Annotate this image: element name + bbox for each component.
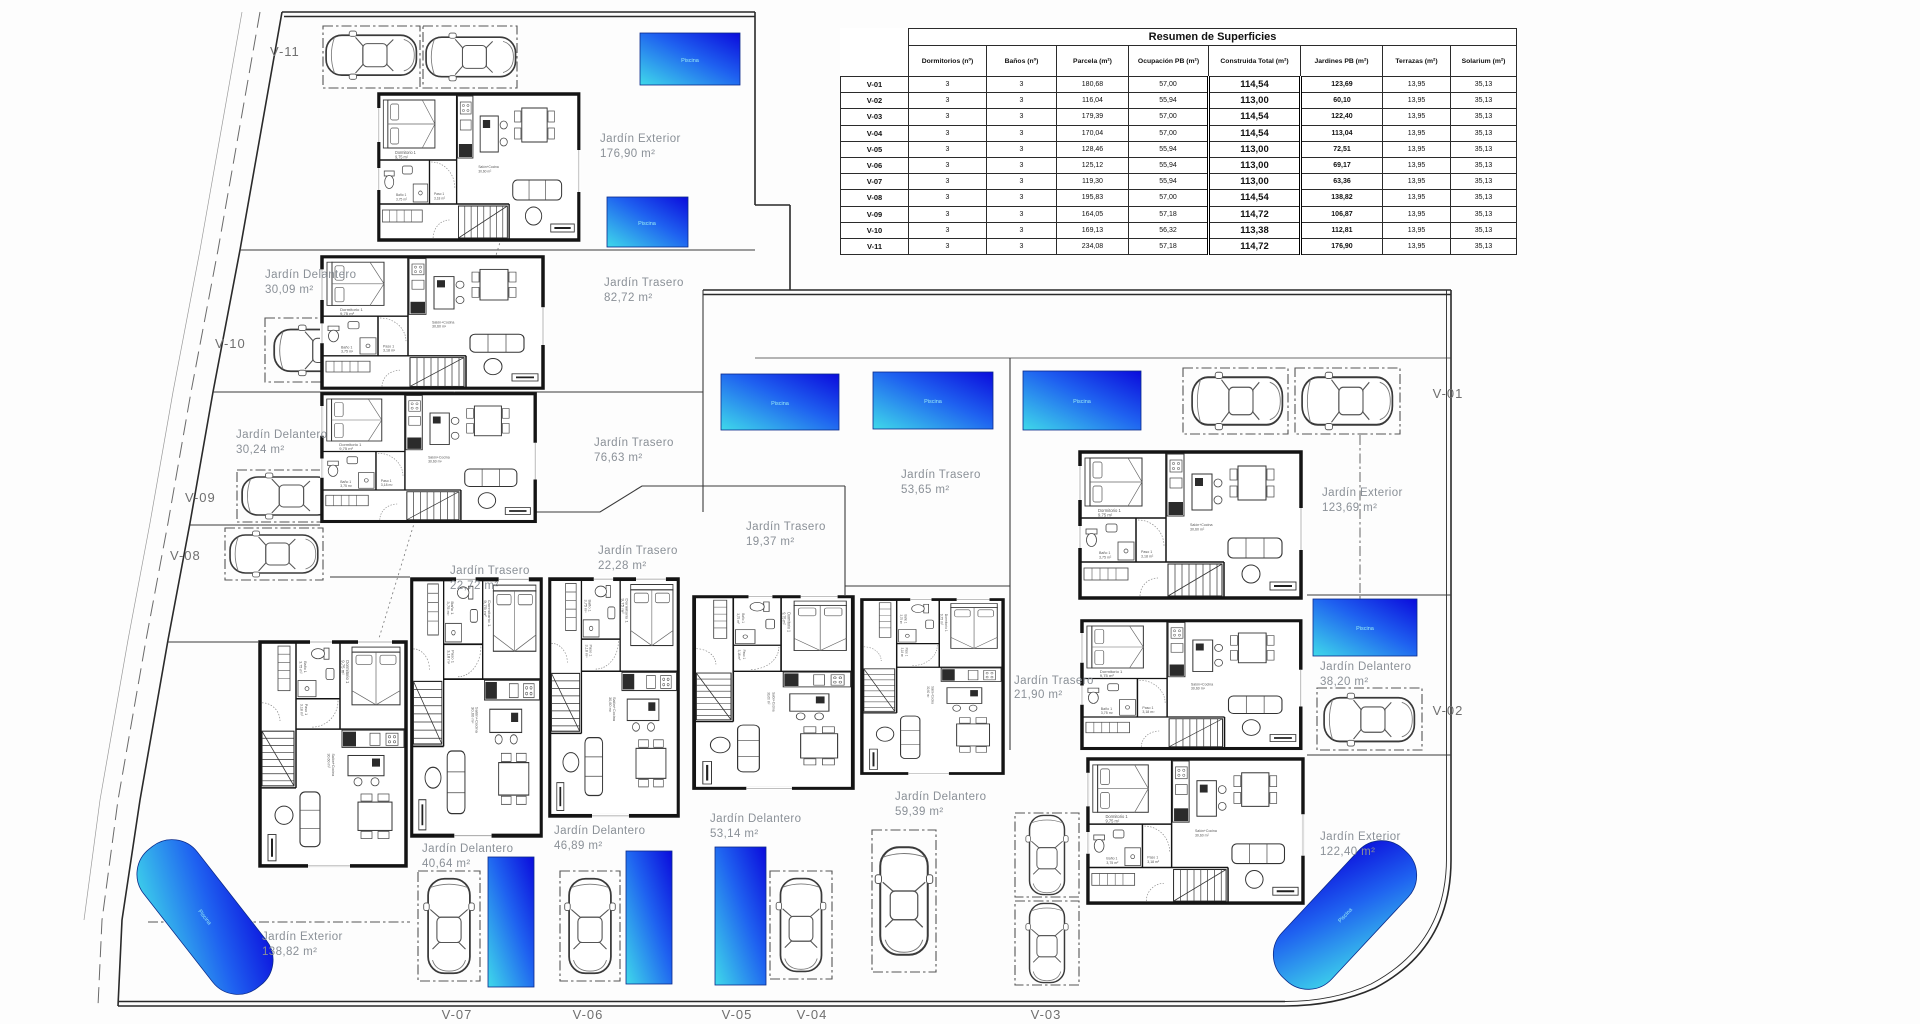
table-cell: 112,81 bbox=[1301, 222, 1383, 238]
pool: Piscina bbox=[873, 372, 993, 429]
villa-label-v01: V-01 bbox=[1433, 386, 1464, 401]
pool bbox=[488, 857, 534, 987]
table-cell: 113,00 bbox=[1209, 174, 1301, 190]
row-unit: V-06 bbox=[841, 157, 909, 173]
garden-label: Jardín Exterior176,90 m² bbox=[600, 133, 681, 160]
row-unit: V-10 bbox=[841, 222, 909, 238]
column-header: Ocupación PB (m²) bbox=[1129, 46, 1209, 77]
table-cell: 55,94 bbox=[1129, 157, 1209, 173]
table-cell: 13,95 bbox=[1383, 157, 1451, 173]
villa-label-v10: V-10 bbox=[215, 336, 246, 351]
pool-label: Piscina bbox=[1073, 399, 1092, 405]
pool bbox=[715, 847, 766, 985]
pool: Piscina bbox=[721, 374, 839, 430]
table-cell: 35,13 bbox=[1451, 174, 1517, 190]
table-row: V-0133180,6857,00114,54123,6913,9535,13 bbox=[841, 77, 1517, 93]
table-cell: 3 bbox=[909, 125, 987, 141]
unit-plan-v07 bbox=[412, 577, 542, 838]
garden-label: Jardín Trasero76,63 m² bbox=[594, 437, 674, 464]
table-cell: 57,18 bbox=[1129, 206, 1209, 222]
table-cell: 3 bbox=[909, 77, 987, 93]
villa-label-v09: V-09 bbox=[185, 490, 216, 505]
row-unit: V-07 bbox=[841, 174, 909, 190]
table-cell: 56,32 bbox=[1129, 222, 1209, 238]
table-cell: 3 bbox=[987, 174, 1057, 190]
pool: Piscina bbox=[1023, 371, 1141, 430]
villa-label-v08: V-08 bbox=[170, 548, 201, 563]
villa-label-v04: V-04 bbox=[797, 1007, 828, 1022]
table-cell: 57,18 bbox=[1129, 238, 1209, 254]
table-cell: 3 bbox=[909, 206, 987, 222]
table-cell: 55,94 bbox=[1129, 141, 1209, 157]
row-unit: V-11 bbox=[841, 238, 909, 254]
row-unit: V-03 bbox=[841, 109, 909, 125]
table-cell: 13,95 bbox=[1383, 190, 1451, 206]
table-cell: 122,40 bbox=[1301, 109, 1383, 125]
table-cell: 119,30 bbox=[1057, 174, 1129, 190]
table-cell: 35,13 bbox=[1451, 157, 1517, 173]
garden-label: Jardín Delantero53,14 m² bbox=[710, 813, 801, 840]
table-cell: 113,38 bbox=[1209, 222, 1301, 238]
table-cell: 3 bbox=[987, 222, 1057, 238]
unit-plan-v05 bbox=[694, 595, 853, 790]
villa-label-v03: V-03 bbox=[1031, 1007, 1062, 1022]
pool bbox=[626, 851, 672, 984]
table-cell: 113,04 bbox=[1301, 125, 1383, 141]
row-unit: V-08 bbox=[841, 190, 909, 206]
table-cell: 57,00 bbox=[1129, 125, 1209, 141]
table-cell: 3 bbox=[987, 190, 1057, 206]
table-cell: 3 bbox=[987, 206, 1057, 222]
table-cell: 114,54 bbox=[1209, 77, 1301, 93]
villa-label-v07: V-07 bbox=[442, 1007, 473, 1022]
table-cell: 3 bbox=[909, 93, 987, 109]
villa-label-v11: V-11 bbox=[270, 44, 300, 59]
table-cell: 57,00 bbox=[1129, 77, 1209, 93]
table-row: V-0733119,3055,94113,0063,3613,9535,13 bbox=[841, 174, 1517, 190]
table-row: V-0433170,0457,00114,54113,0413,9535,13 bbox=[841, 125, 1517, 141]
row-unit: V-02 bbox=[841, 93, 909, 109]
table-cell: 113,00 bbox=[1209, 157, 1301, 173]
unit-plan-v04 bbox=[862, 598, 1003, 775]
garden-label: Jardín Trasero19,37 m² bbox=[746, 521, 826, 548]
pool: Piscina bbox=[640, 33, 740, 85]
unit-plan-v08 bbox=[260, 640, 406, 868]
unit-plan-v03 bbox=[1086, 759, 1305, 903]
table-cell: 35,13 bbox=[1451, 141, 1517, 157]
table-cell: 3 bbox=[909, 174, 987, 190]
table-cell: 176,90 bbox=[1301, 238, 1383, 254]
site-plan-page: Dormitorio 1 9,75 m² Baño 1 3,75 m² Paso… bbox=[0, 0, 1920, 1024]
table-row: V-1033169,1356,32113,38112,8113,9535,13 bbox=[841, 222, 1517, 238]
table-cell: 72,51 bbox=[1301, 141, 1383, 157]
table-cell: 128,46 bbox=[1057, 141, 1129, 157]
table-cell: 35,13 bbox=[1451, 206, 1517, 222]
table-cell: 3 bbox=[987, 157, 1057, 173]
pool-label: Piscina bbox=[771, 401, 790, 407]
table-cell: 13,95 bbox=[1383, 206, 1451, 222]
table-cell: 114,72 bbox=[1209, 238, 1301, 254]
table-cell: 106,87 bbox=[1301, 206, 1383, 222]
column-header: Construida Total (m²) bbox=[1209, 46, 1301, 77]
table-cell: 3 bbox=[909, 141, 987, 157]
pool: Piscina bbox=[607, 197, 688, 247]
pool-label: Piscina bbox=[681, 58, 700, 64]
surface-summary-table: Resumen de Superficies Dormitorios (nº) … bbox=[840, 28, 1517, 255]
table-title-row: Resumen de Superficies bbox=[841, 29, 1517, 46]
table-cell: 113,00 bbox=[1209, 141, 1301, 157]
table-cell: 13,95 bbox=[1383, 174, 1451, 190]
garden-label: Jardín Delantero46,89 m² bbox=[554, 825, 645, 852]
unit-plan-v06 bbox=[550, 577, 678, 818]
table-cell: 60,10 bbox=[1301, 93, 1383, 109]
table-cell: 3 bbox=[909, 109, 987, 125]
table-row: V-0333179,3957,00114,54122,4013,9535,13 bbox=[841, 109, 1517, 125]
table-row: V-0633125,1255,94113,0069,1713,9535,13 bbox=[841, 157, 1517, 173]
table-cell: 3 bbox=[909, 238, 987, 254]
table-cell: 35,13 bbox=[1451, 109, 1517, 125]
table-cell: 13,95 bbox=[1383, 238, 1451, 254]
table-cell: 114,54 bbox=[1209, 190, 1301, 206]
unit-plan-v11 bbox=[377, 94, 581, 240]
table-cell: 113,00 bbox=[1209, 93, 1301, 109]
table-cell: 3 bbox=[987, 109, 1057, 125]
unit-plan-v09 bbox=[320, 394, 537, 522]
row-unit: V-01 bbox=[841, 77, 909, 93]
column-header: Parcela (m²) bbox=[1057, 46, 1129, 77]
table-cell: 114,54 bbox=[1209, 109, 1301, 125]
table-cell: 3 bbox=[987, 238, 1057, 254]
table-cell: 234,08 bbox=[1057, 238, 1129, 254]
garden-label: Jardín Delantero59,39 m² bbox=[895, 791, 986, 818]
table-cell: 170,04 bbox=[1057, 125, 1129, 141]
garden-label: Jardín Trasero53,65 m² bbox=[901, 469, 981, 496]
table-cell: 35,13 bbox=[1451, 190, 1517, 206]
column-header: Dormitorios (nº) bbox=[909, 46, 987, 77]
table-row: V-0833195,8357,00114,54138,8213,9535,13 bbox=[841, 190, 1517, 206]
unit-plan-v02 bbox=[1080, 621, 1303, 749]
table-cell: 138,82 bbox=[1301, 190, 1383, 206]
table-corner bbox=[841, 46, 909, 77]
villa-label-v06: V-06 bbox=[573, 1007, 604, 1022]
table-cell: 35,13 bbox=[1451, 222, 1517, 238]
table-cell: 55,94 bbox=[1129, 93, 1209, 109]
table-row: V-0233116,0455,94113,0060,1013,9535,13 bbox=[841, 93, 1517, 109]
table-cell: 169,13 bbox=[1057, 222, 1129, 238]
table-cell: 35,13 bbox=[1451, 77, 1517, 93]
table-cell: 3 bbox=[987, 77, 1057, 93]
table-row: V-0933164,0557,18114,72106,8713,9535,13 bbox=[841, 206, 1517, 222]
table-cell: 164,05 bbox=[1057, 206, 1129, 222]
garden-label: Jardín Exterior123,69 m² bbox=[1322, 487, 1403, 514]
table-title: Resumen de Superficies bbox=[909, 29, 1517, 46]
table-cell: 123,69 bbox=[1301, 77, 1383, 93]
villa-label-v05: V-05 bbox=[722, 1007, 753, 1022]
column-header: Solarium (m²) bbox=[1451, 46, 1517, 77]
pool-label: Piscina bbox=[638, 221, 657, 227]
table-cell: 114,72 bbox=[1209, 206, 1301, 222]
table-cell: 13,95 bbox=[1383, 77, 1451, 93]
unit-plan-v01 bbox=[1078, 452, 1303, 598]
table-cell: 179,39 bbox=[1057, 109, 1129, 125]
pool-label: Piscina bbox=[924, 399, 943, 405]
table-header-row: Dormitorios (nº) Baños (nº) Parcela (m²)… bbox=[841, 46, 1517, 77]
row-unit: V-09 bbox=[841, 206, 909, 222]
column-header: Jardines PB (m²) bbox=[1301, 46, 1383, 77]
table-cell: 3 bbox=[909, 222, 987, 238]
garden-label: Jardín Delantero30,24 m² bbox=[236, 429, 327, 456]
table-cell: 13,95 bbox=[1383, 222, 1451, 238]
table-cell: 114,54 bbox=[1209, 125, 1301, 141]
table-cell: 57,00 bbox=[1129, 109, 1209, 125]
table-cell: 3 bbox=[987, 141, 1057, 157]
table-cell: 125,12 bbox=[1057, 157, 1129, 173]
garden-label: Jardín Delantero38,20 m² bbox=[1320, 661, 1411, 688]
table-cell: 35,13 bbox=[1451, 93, 1517, 109]
table-cell: 13,95 bbox=[1383, 141, 1451, 157]
column-header: Terrazas (m²) bbox=[1383, 46, 1451, 77]
table-cell: 69,17 bbox=[1301, 157, 1383, 173]
garden-label: Jardín Trasero82,72 m² bbox=[604, 277, 684, 304]
table-cell: 3 bbox=[909, 190, 987, 206]
table-cell: 13,95 bbox=[1383, 125, 1451, 141]
table-row: V-0533128,4655,94113,0072,5113,9535,13 bbox=[841, 141, 1517, 157]
table-cell: 3 bbox=[987, 93, 1057, 109]
table-cell: 13,95 bbox=[1383, 93, 1451, 109]
villa-label-v02: V-02 bbox=[1433, 703, 1464, 718]
table-cell: 116,04 bbox=[1057, 93, 1129, 109]
row-unit: V-05 bbox=[841, 141, 909, 157]
table-cell: 55,94 bbox=[1129, 174, 1209, 190]
table-cell: 57,00 bbox=[1129, 190, 1209, 206]
table-row: V-1133234,0857,18114,72176,9013,9535,13 bbox=[841, 238, 1517, 254]
pool-label: Piscina bbox=[1356, 626, 1375, 632]
column-header: Baños (nº) bbox=[987, 46, 1057, 77]
table-cell: 13,95 bbox=[1383, 109, 1451, 125]
table-cell: 63,36 bbox=[1301, 174, 1383, 190]
pool: Piscina bbox=[1313, 599, 1417, 656]
table-cell: 195,83 bbox=[1057, 190, 1129, 206]
garden-label: Jardín Trasero22,28 m² bbox=[598, 545, 678, 572]
row-unit: V-04 bbox=[841, 125, 909, 141]
table-cell: 180,68 bbox=[1057, 77, 1129, 93]
table-corner bbox=[841, 29, 909, 46]
table-cell: 35,13 bbox=[1451, 125, 1517, 141]
table-cell: 3 bbox=[909, 157, 987, 173]
table-cell: 35,13 bbox=[1451, 238, 1517, 254]
garden-label: Jardín Exterior138,82 m² bbox=[262, 931, 343, 958]
table-cell: 3 bbox=[987, 125, 1057, 141]
